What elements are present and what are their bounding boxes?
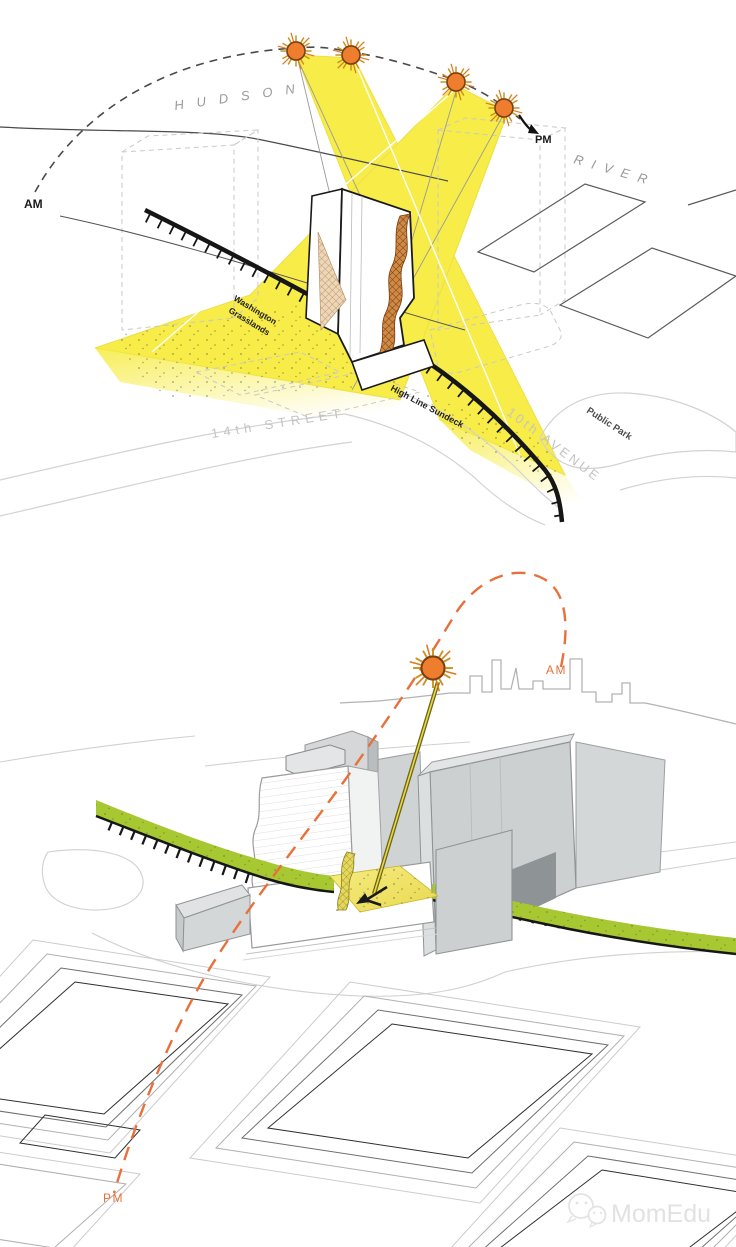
label-am: AM xyxy=(24,197,43,211)
slab-leg xyxy=(436,830,512,954)
chat-bubbles-logo-icon xyxy=(568,1194,606,1227)
wedge-building xyxy=(176,885,250,951)
bottom-sun-ray-diagram: AM PM MomEdu xyxy=(0,530,736,1247)
label-public-park: Public Park xyxy=(584,405,634,443)
sun-icon xyxy=(410,645,457,692)
watermark: MomEdu xyxy=(568,1194,711,1228)
top-sun-study-diagram: AM PM HUDSON RIVER Washington Grasslands… xyxy=(0,0,736,530)
label-am: AM xyxy=(546,663,567,677)
pier-columns xyxy=(110,824,258,880)
label-hudson: HUDSON xyxy=(173,79,308,113)
city-block-outlines xyxy=(478,184,736,338)
diagram-page: AM PM HUDSON RIVER Washington Grasslands… xyxy=(0,0,736,1247)
watermark-text: MomEdu xyxy=(611,1200,711,1228)
city-skyline xyxy=(340,659,736,724)
sun-icon xyxy=(486,90,522,126)
label-14th-street: 14th STREET xyxy=(210,405,346,441)
label-pm: PM xyxy=(535,134,552,146)
tower-front-face xyxy=(338,189,414,362)
label-pm: PM xyxy=(103,1191,124,1205)
sun-icon xyxy=(333,37,369,73)
